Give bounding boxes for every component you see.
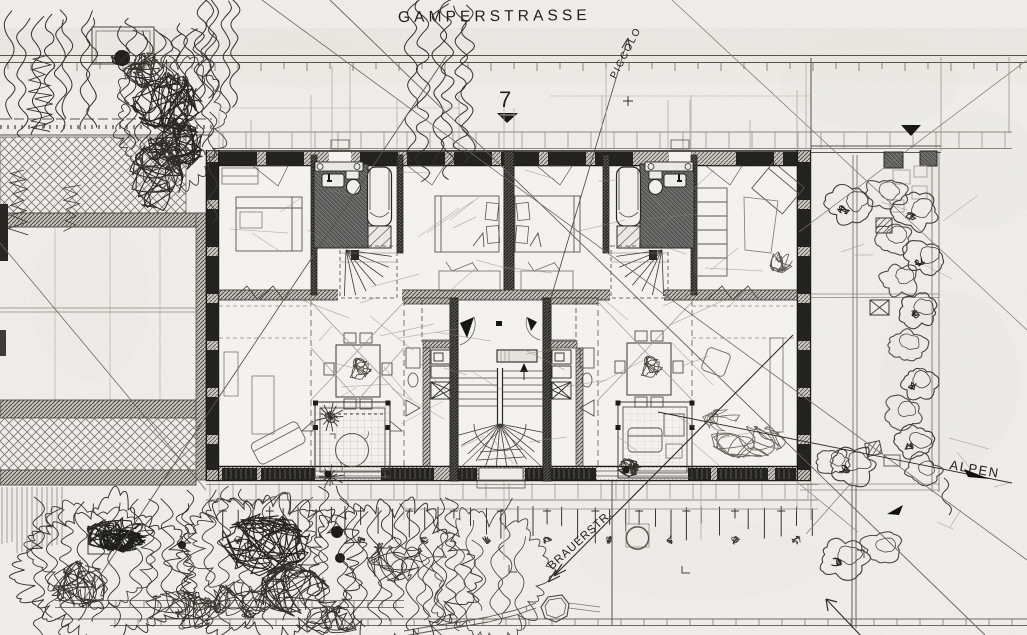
svg-text:GAMPERSTRASSE: GAMPERSTRASSE	[398, 7, 591, 26]
svg-text:7: 7	[499, 87, 511, 112]
